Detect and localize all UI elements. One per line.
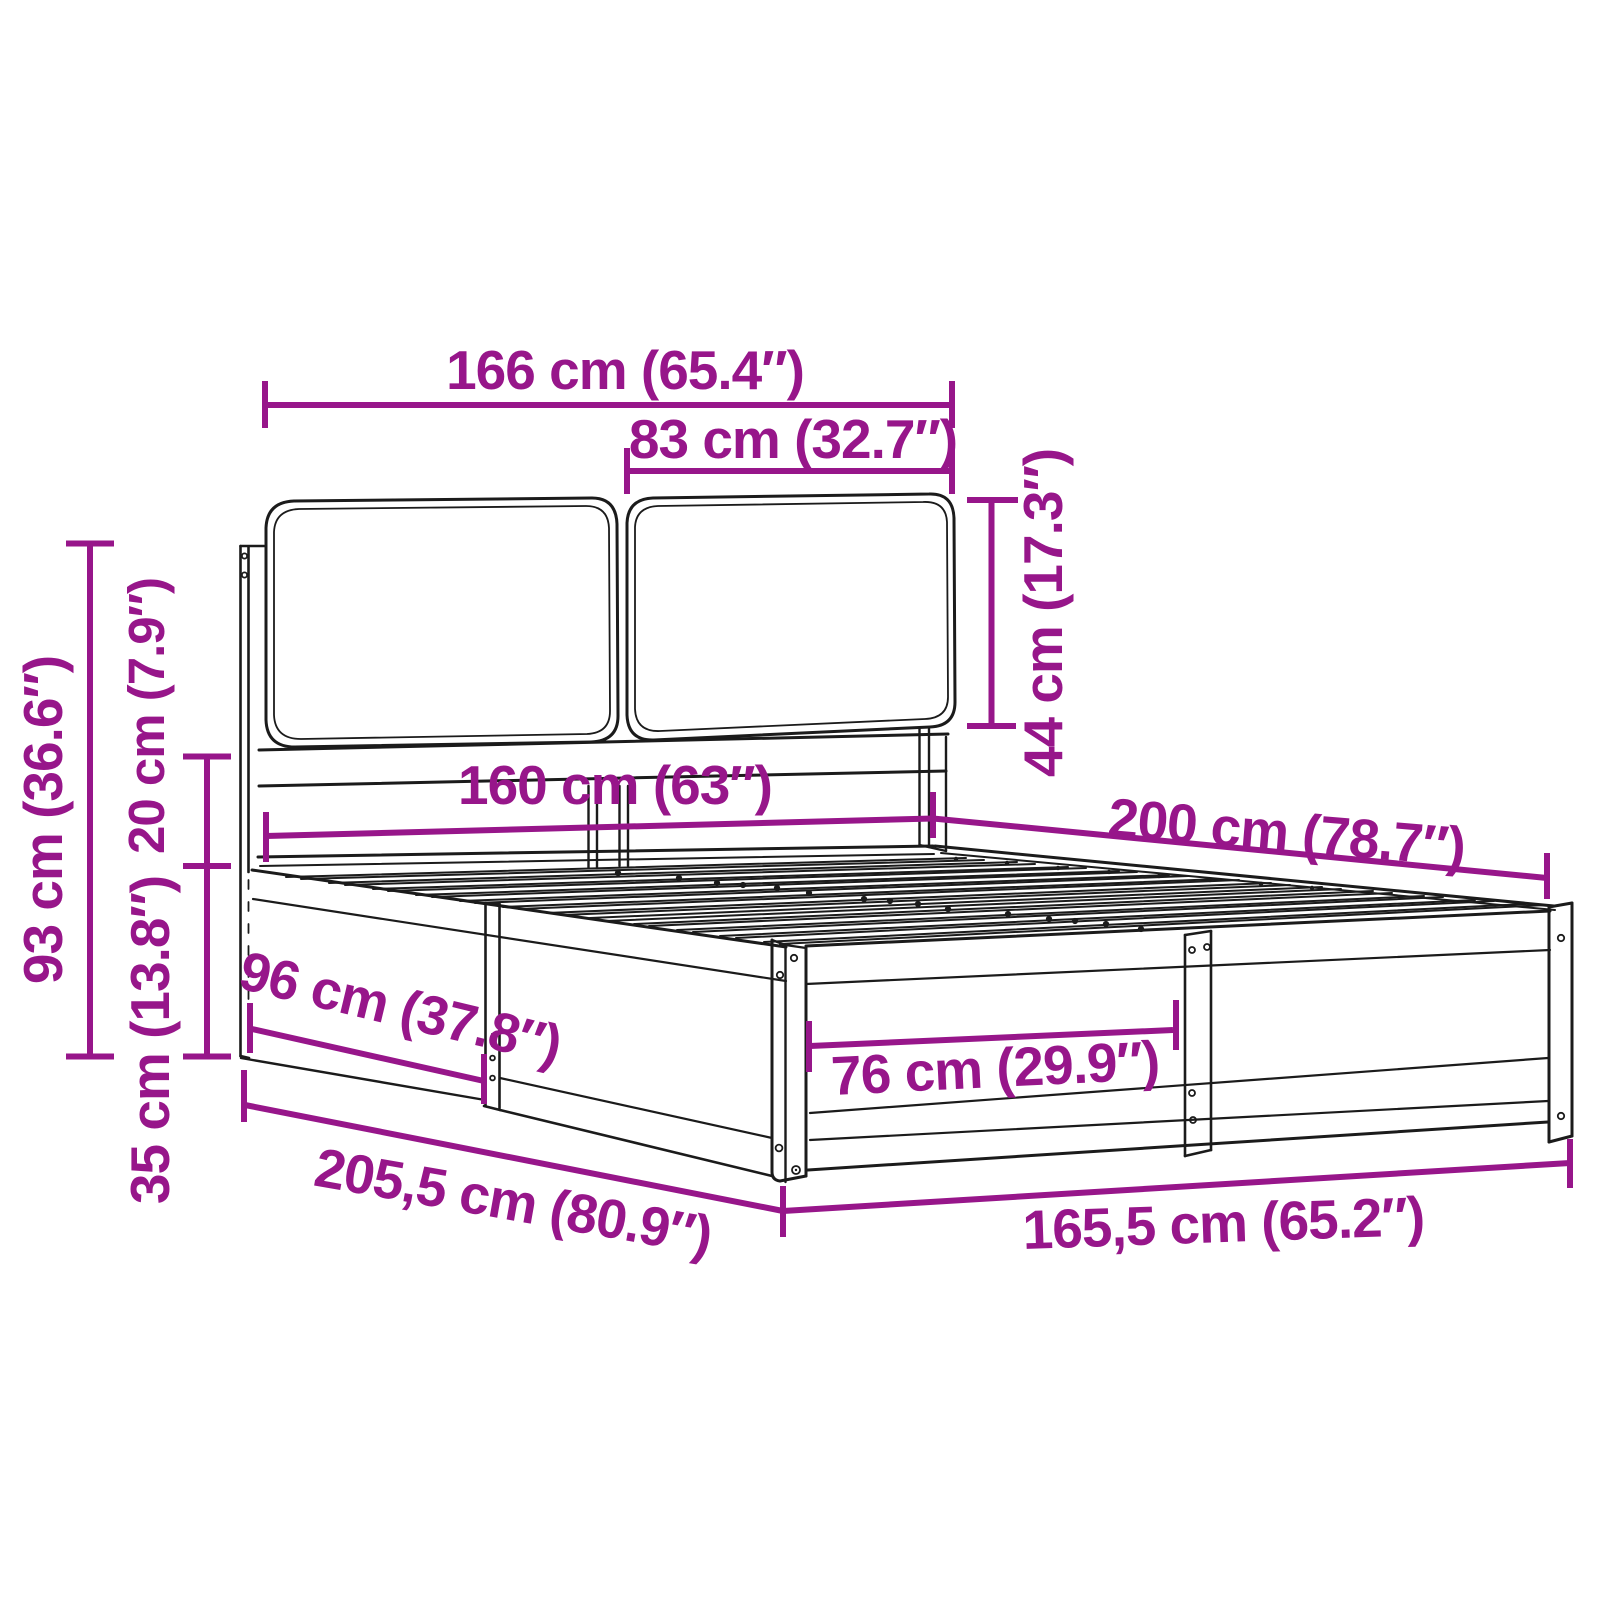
svg-text:83 cm (32.7″): 83 cm (32.7″): [629, 408, 957, 470]
svg-text:93 cm (36.6″): 93 cm (36.6″): [12, 656, 74, 984]
svg-text:20 cm (7.9″): 20 cm (7.9″): [118, 578, 175, 854]
svg-text:44 cm (17.3″): 44 cm (17.3″): [1012, 449, 1074, 777]
svg-text:166 cm (65.4″): 166 cm (65.4″): [446, 339, 804, 401]
svg-text:160 cm (63″): 160 cm (63″): [458, 754, 772, 816]
svg-text:35 cm (13.8″): 35 cm (13.8″): [119, 876, 181, 1204]
